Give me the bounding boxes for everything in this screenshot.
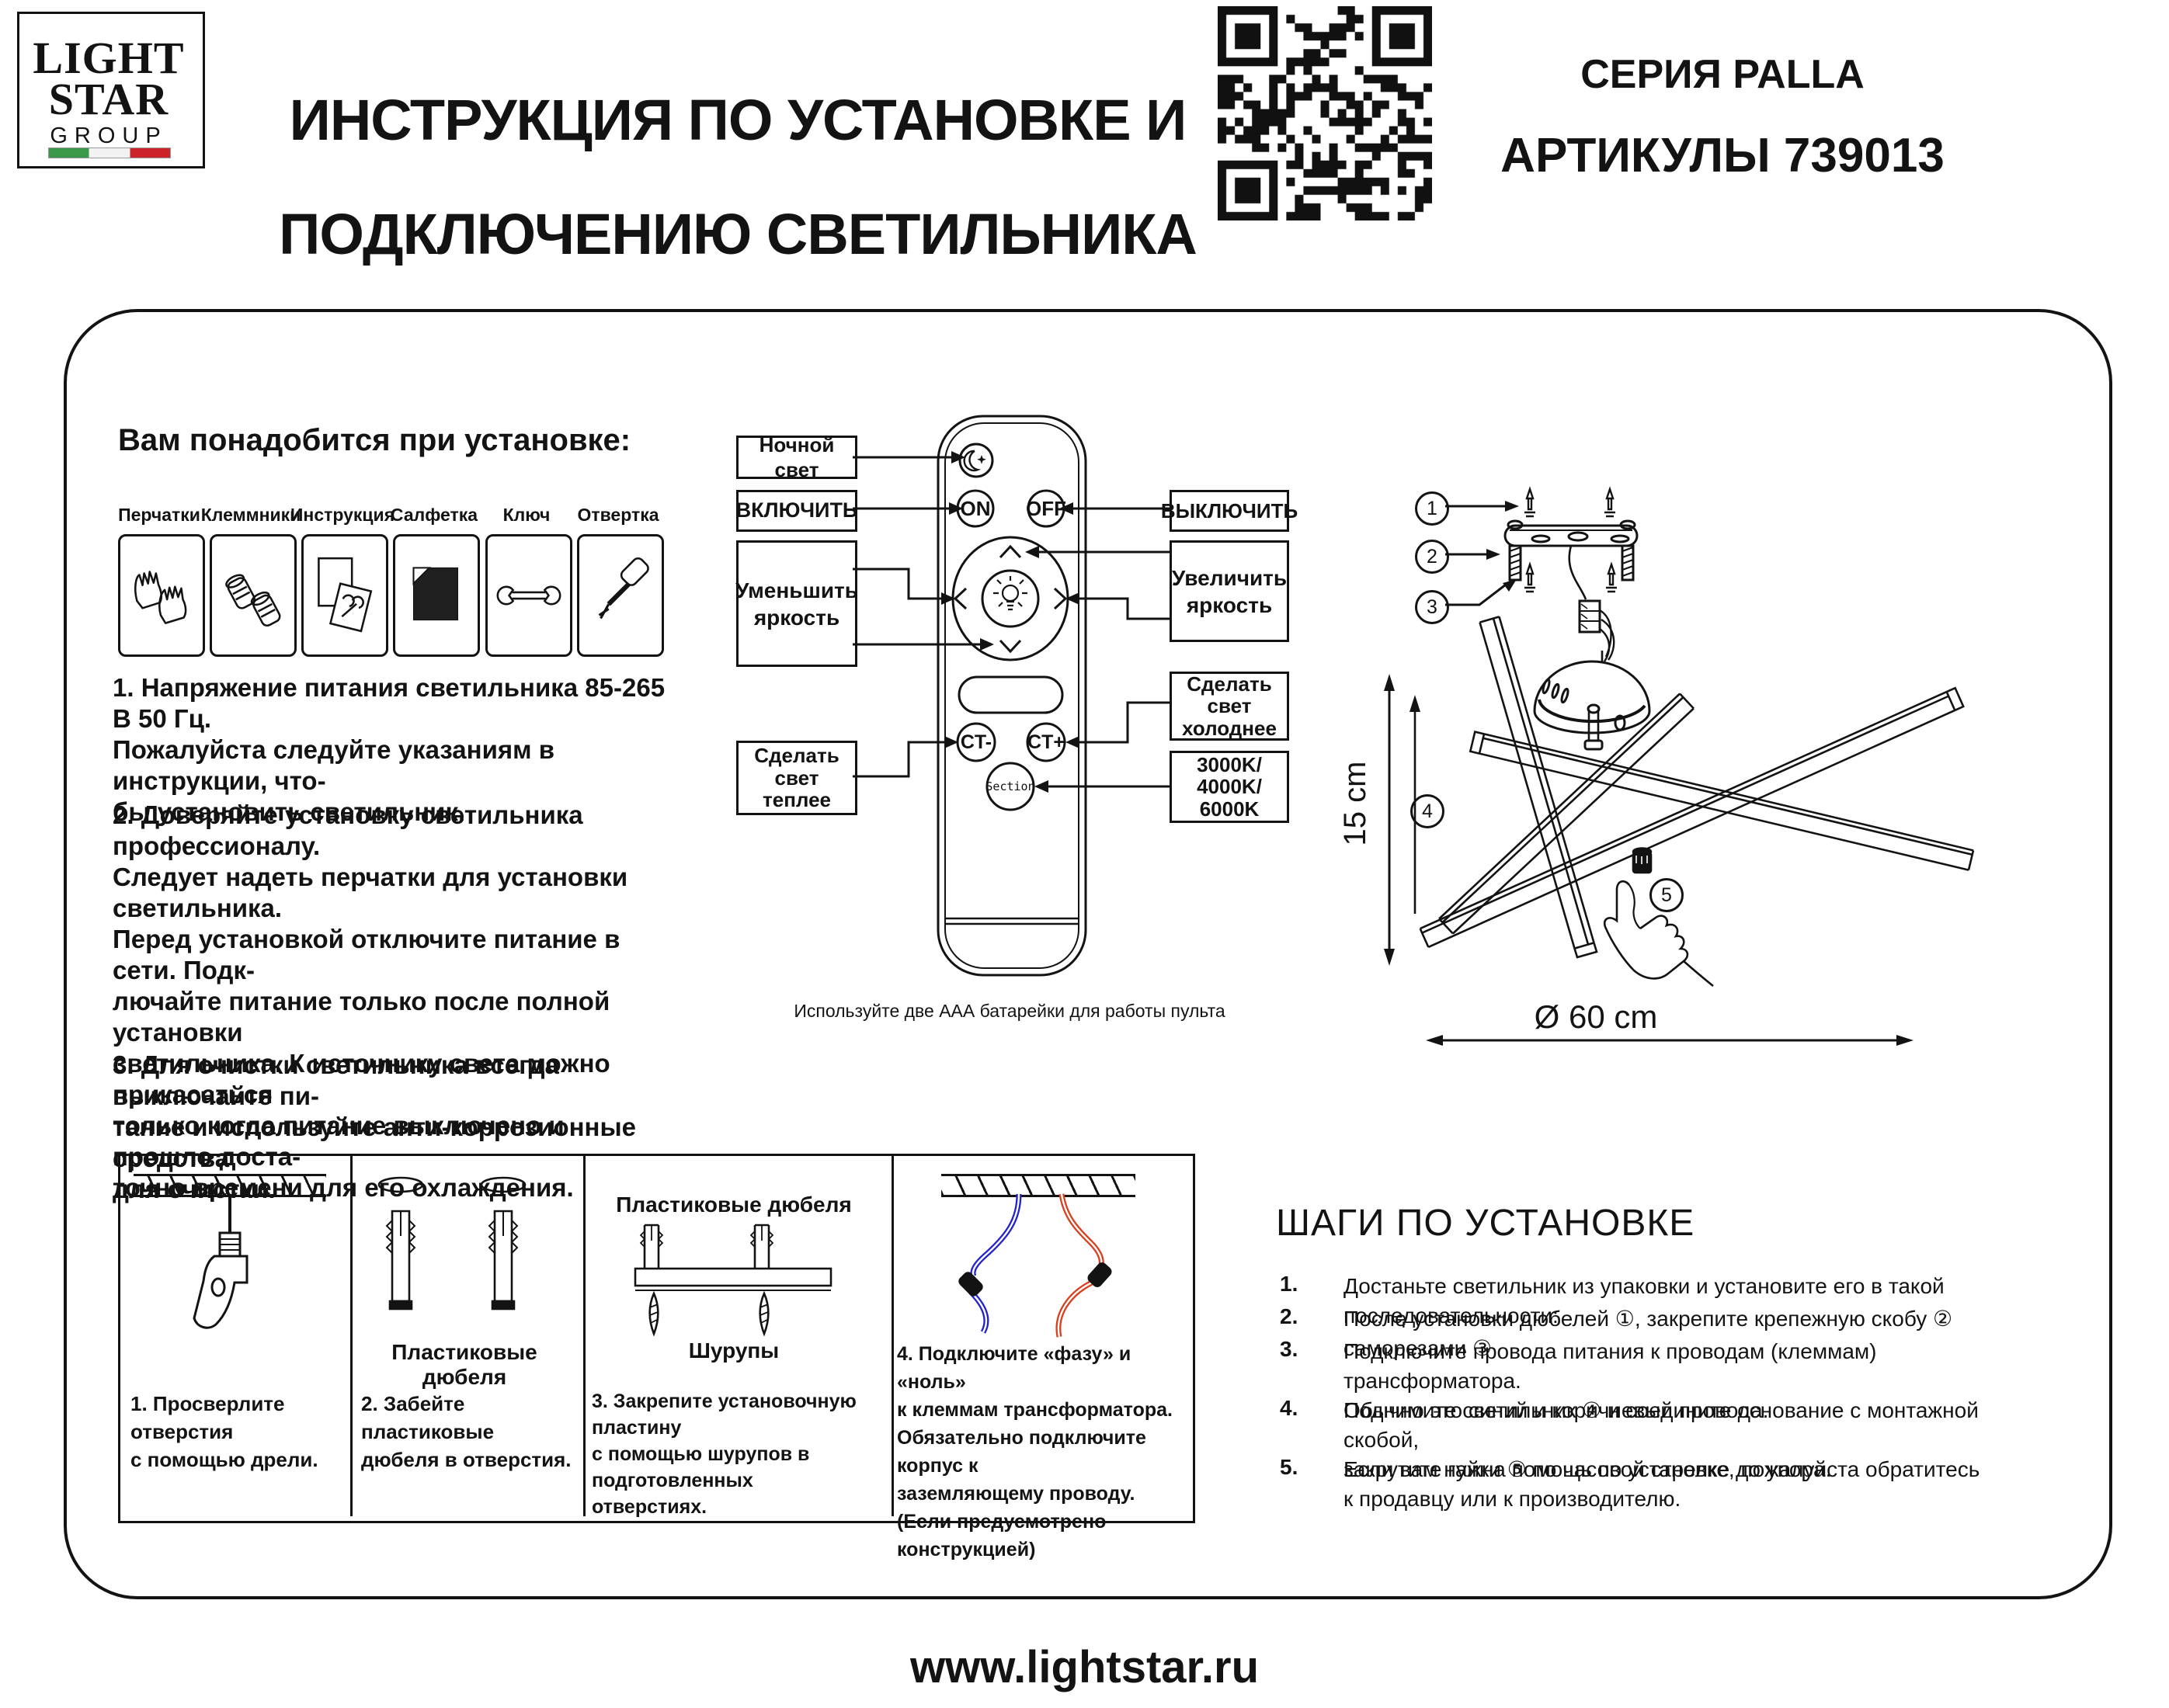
instruction-sheet: LIGHT STAR GROUP ИНСТРУКЦИЯ ПО УСТАНОВКЕ…	[0, 0, 2169, 1708]
hand-with-nut-drawing	[1604, 849, 1713, 987]
remote-callout-lines	[853, 457, 1170, 786]
night-light-icon	[965, 451, 986, 470]
screws-drawing	[650, 1293, 769, 1334]
left-chevron-icon	[955, 588, 966, 609]
height-dimension-arrow	[1384, 674, 1420, 966]
diameter-dimension-arrow	[1426, 1035, 1914, 1046]
light-bars	[1420, 616, 1973, 957]
drill-drawing	[194, 1196, 247, 1328]
mounting-plate-drawing	[635, 1225, 831, 1334]
down-chevron-icon	[1000, 640, 1020, 651]
up-chevron-icon	[1000, 547, 1020, 557]
power-wire	[1569, 546, 1586, 599]
line-art-overlay	[0, 0, 2169, 1708]
remote-callout-arrowheads	[941, 451, 1079, 793]
bulb-icon	[993, 576, 1027, 609]
terminal-block	[1580, 601, 1600, 632]
remote-control-drawing	[938, 416, 1086, 975]
right-chevron-icon	[1055, 588, 1065, 609]
dowels-drawing	[379, 1178, 525, 1309]
canopy	[1535, 651, 1649, 749]
wires-drawing	[958, 1194, 1112, 1337]
terminal-cap-blue	[958, 1272, 984, 1297]
fixture-diagram	[1384, 489, 1973, 1046]
dowel-pins	[1524, 489, 1617, 592]
